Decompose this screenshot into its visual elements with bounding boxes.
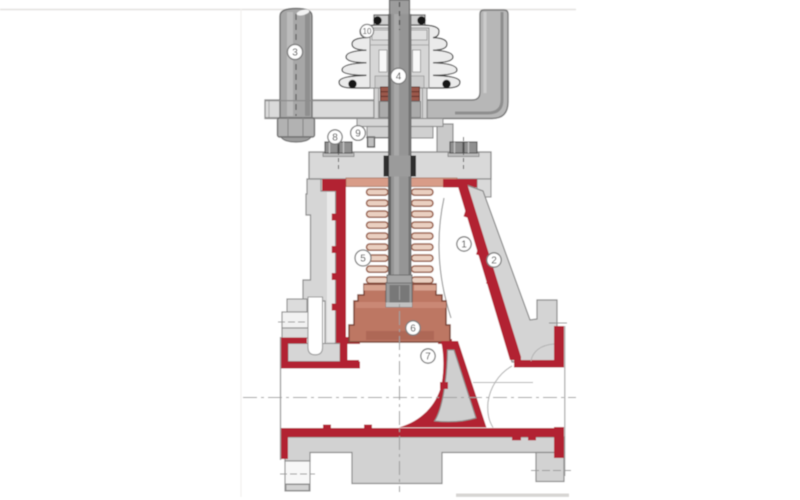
svg-text:8: 8 [332,132,338,143]
svg-text:9: 9 [355,128,361,139]
svg-text:6: 6 [410,323,416,334]
svg-text:1: 1 [461,239,467,250]
svg-text:7: 7 [425,351,431,362]
svg-text:4: 4 [396,72,402,83]
svg-text:10: 10 [363,27,372,36]
svg-text:5: 5 [360,254,366,265]
svg-text:2: 2 [491,255,497,266]
svg-text:3: 3 [292,47,298,58]
